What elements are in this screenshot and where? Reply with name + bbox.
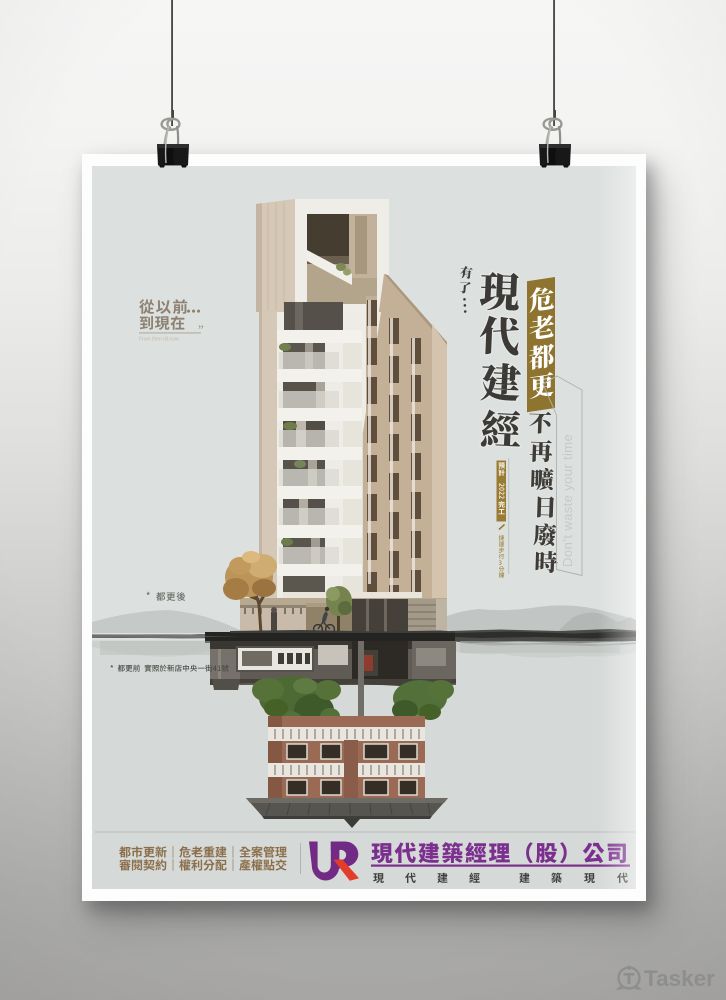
svg-text:Tasker: Tasker [644, 966, 715, 991]
svg-text:”: ” [198, 322, 204, 337]
svg-text:Don’t waste your time: Don’t waste your time [560, 434, 575, 567]
svg-text:From then till now: From then till now [139, 337, 179, 343]
